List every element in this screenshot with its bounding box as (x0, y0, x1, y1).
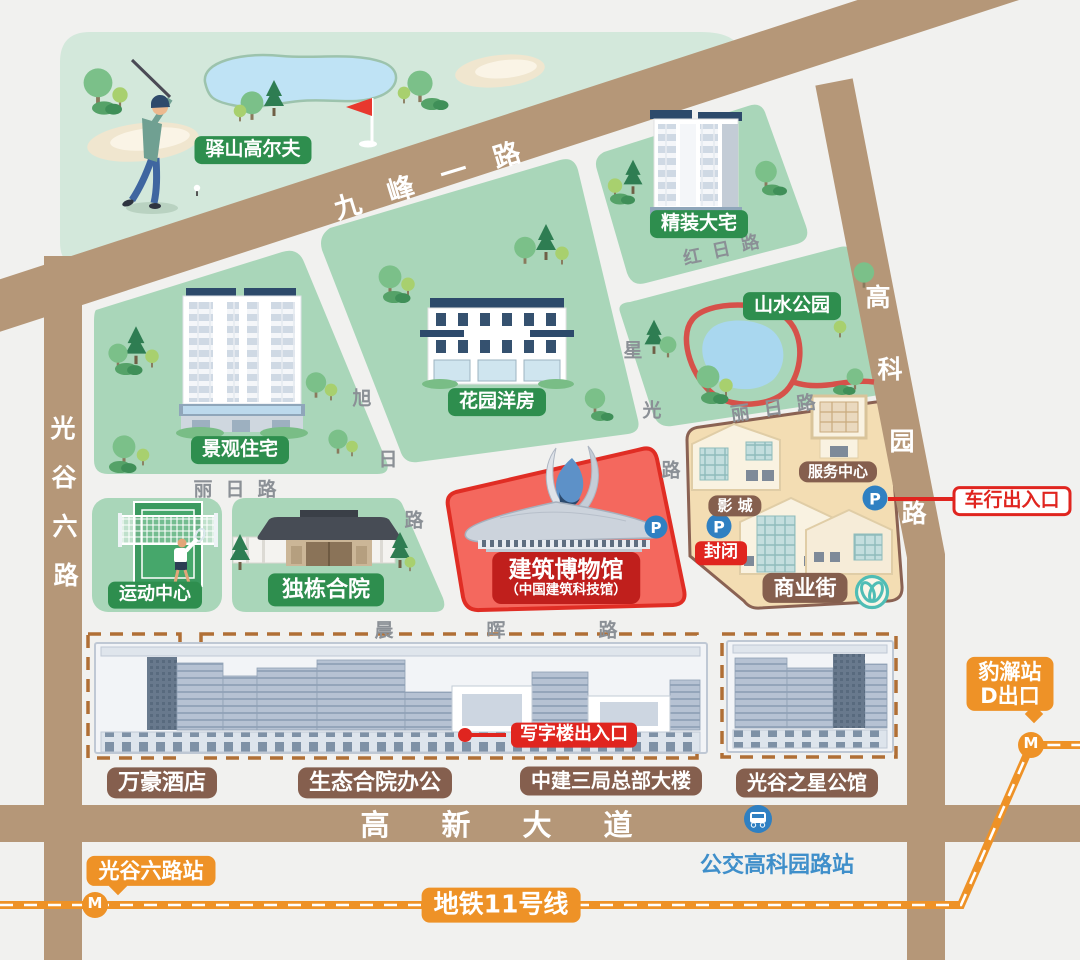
metro-line-badge: 地铁11号线 (422, 888, 581, 923)
parking-icon: P (863, 486, 888, 511)
poi-yundong: 运动中心 (108, 582, 202, 609)
museum-alt-name: （中国建筑科技馆） (505, 583, 627, 599)
metro-station-east: 豹澥站 D出口 (967, 657, 1054, 711)
poi-golf: 驿山高尔夫 (194, 136, 311, 164)
apartment-illustration (650, 110, 742, 217)
residential-tower-illustration (176, 288, 308, 439)
marker-office-gate: 写字楼出入口 (511, 723, 637, 748)
poi-huayuan: 花园洋房 (448, 388, 546, 416)
poi-eco-office: 生态合院办公 (298, 767, 452, 798)
east-station-name: 豹澥站 (979, 660, 1042, 684)
svg-text:P: P (651, 519, 662, 537)
poi-service-center: 服务中心 (799, 461, 877, 482)
metro-station-icon: M (1018, 732, 1044, 758)
poi-jingzhuang: 精装大宅 (650, 210, 748, 238)
star-mansion-illustration (727, 641, 893, 752)
golf-lake (205, 55, 396, 107)
road-guanggu6 (44, 256, 82, 960)
garden-house-illustration (420, 298, 574, 389)
svg-text:P: P (869, 490, 881, 509)
poi-star-mansion: 光谷之星公馆 (736, 769, 878, 798)
tennis-court-illustration (118, 502, 218, 586)
museum-name: 建筑博物馆 (505, 557, 627, 583)
poi-hotel: 万豪酒店 (107, 767, 217, 798)
bus-stop-label: 公交高科园路站 (700, 847, 854, 879)
poi-museum: 建筑博物馆 （中国建筑科技馆） (492, 552, 640, 604)
parking-icon: P (707, 514, 732, 539)
poi-shopping-street: 商业街 (763, 573, 848, 603)
illustrated-area-map: P P P M M 九峰一路 光谷六路 高科园路 高新大道 红日路 旭日路 星光… (0, 0, 1080, 960)
metro-station-icon: M (82, 892, 108, 918)
svg-text:M: M (1024, 734, 1039, 752)
brand-logo-icon (857, 577, 888, 608)
poi-jingguan: 景观住宅 (191, 436, 289, 464)
poi-shanshui: 山水公园 (743, 292, 841, 320)
poi-hq-tower: 中建三局总部大楼 (520, 767, 702, 796)
bus-stop-icon (744, 805, 772, 833)
service-center-building (812, 396, 866, 458)
east-station-exit: D出口 (979, 684, 1042, 708)
poi-cinema: 影 城 (708, 495, 761, 516)
metro-station-west: 光谷六路站 (87, 856, 216, 886)
parking-icon: P (645, 516, 668, 539)
svg-text:M: M (88, 894, 103, 912)
svg-text:P: P (713, 518, 725, 537)
marker-car-gate: 车行出入口 (952, 486, 1071, 516)
marker-closed: 封闭 (695, 541, 747, 565)
poi-dudong: 独栋合院 (268, 573, 384, 606)
